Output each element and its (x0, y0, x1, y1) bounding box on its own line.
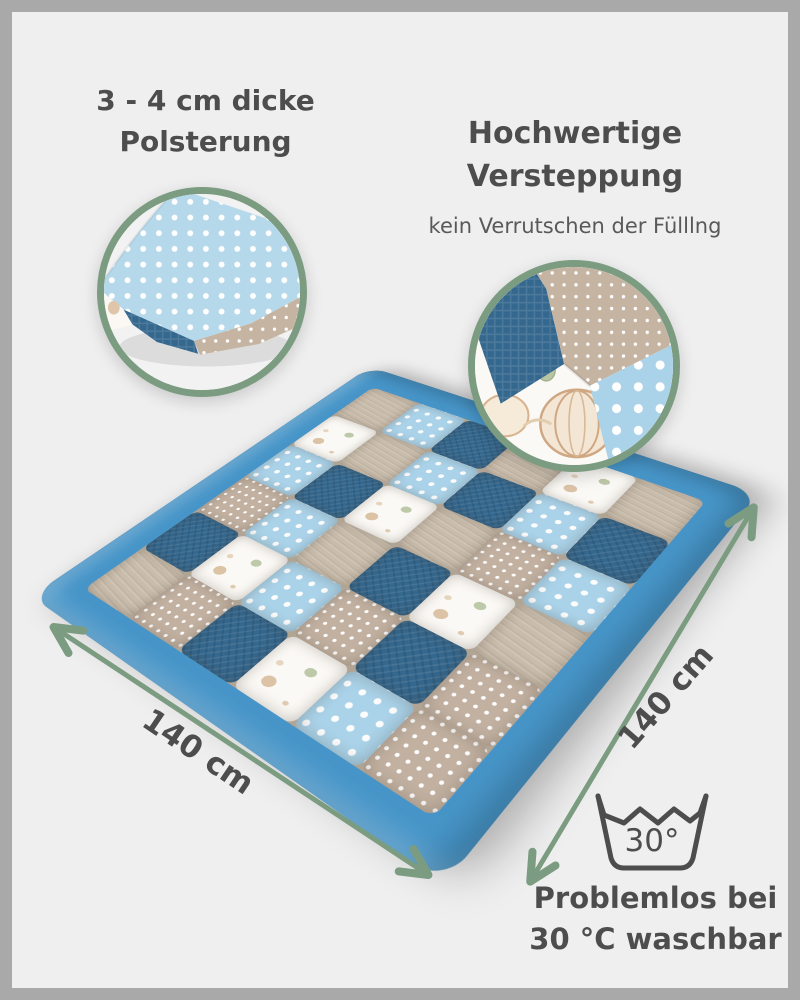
detail-circle-quilting (468, 260, 680, 472)
padding-note-line1: 3 - 4 cm dicke (68, 80, 343, 121)
quilting-note: Hochwertige Versteppung kein Verrutschen… (420, 112, 730, 239)
washing-tub-icon: 30° (588, 791, 716, 879)
washing-temp-label: 30° (625, 823, 680, 859)
quilting-closeup-photo (475, 267, 673, 465)
quilting-note-line1: Hochwertige (420, 112, 730, 155)
quilting-note-subtitle: kein Verrutschen der Fülllng (420, 213, 730, 239)
washing-note-line1: Problemlos bei (508, 878, 800, 919)
quilting-note-line2: Versteppung (420, 155, 730, 198)
washing-note-line2: 30 °C waschbar (508, 919, 800, 960)
washing-note: Problemlos bei 30 °C waschbar (508, 878, 800, 960)
padding-note: 3 - 4 cm dicke Polsterung (68, 80, 343, 162)
detail-circle-padding (97, 187, 307, 397)
padding-note-line2: Polsterung (68, 121, 343, 162)
padding-closeup-photo (104, 194, 300, 390)
